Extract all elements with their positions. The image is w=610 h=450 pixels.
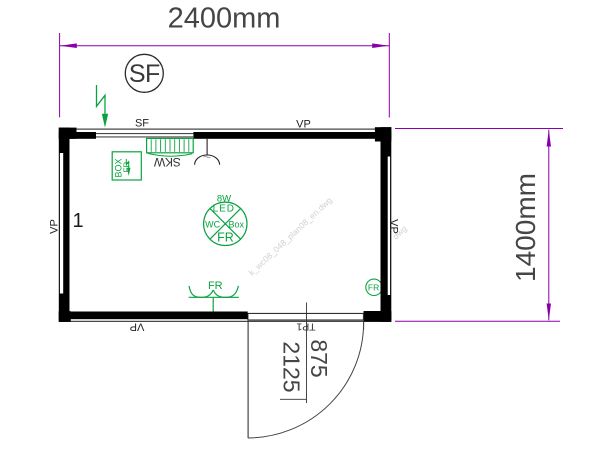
svg-text:SF: SF (135, 118, 149, 130)
svg-text:FR: FR (217, 231, 234, 245)
svg-text:TP1: TP1 (296, 320, 315, 332)
svg-text:875: 875 (306, 339, 332, 377)
svg-text:1400mm: 1400mm (510, 173, 541, 282)
svg-text:2400mm: 2400mm (168, 2, 281, 34)
svg-text:VP: VP (388, 219, 400, 234)
svg-text:SF: SF (129, 60, 160, 88)
svg-text:VP: VP (296, 118, 311, 130)
svg-text:WC: WC (205, 219, 220, 229)
svg-text:VP: VP (49, 219, 61, 234)
svg-text:FR: FR (208, 280, 223, 292)
svg-text:2125: 2125 (279, 341, 305, 392)
svg-text:FR: FR (368, 283, 379, 293)
svg-text:VP: VP (130, 321, 145, 333)
svg-text:Box: Box (229, 219, 245, 229)
svg-text:SKW: SKW (153, 155, 180, 169)
svg-text:LED: LED (213, 203, 235, 214)
svg-text:1: 1 (72, 210, 83, 232)
